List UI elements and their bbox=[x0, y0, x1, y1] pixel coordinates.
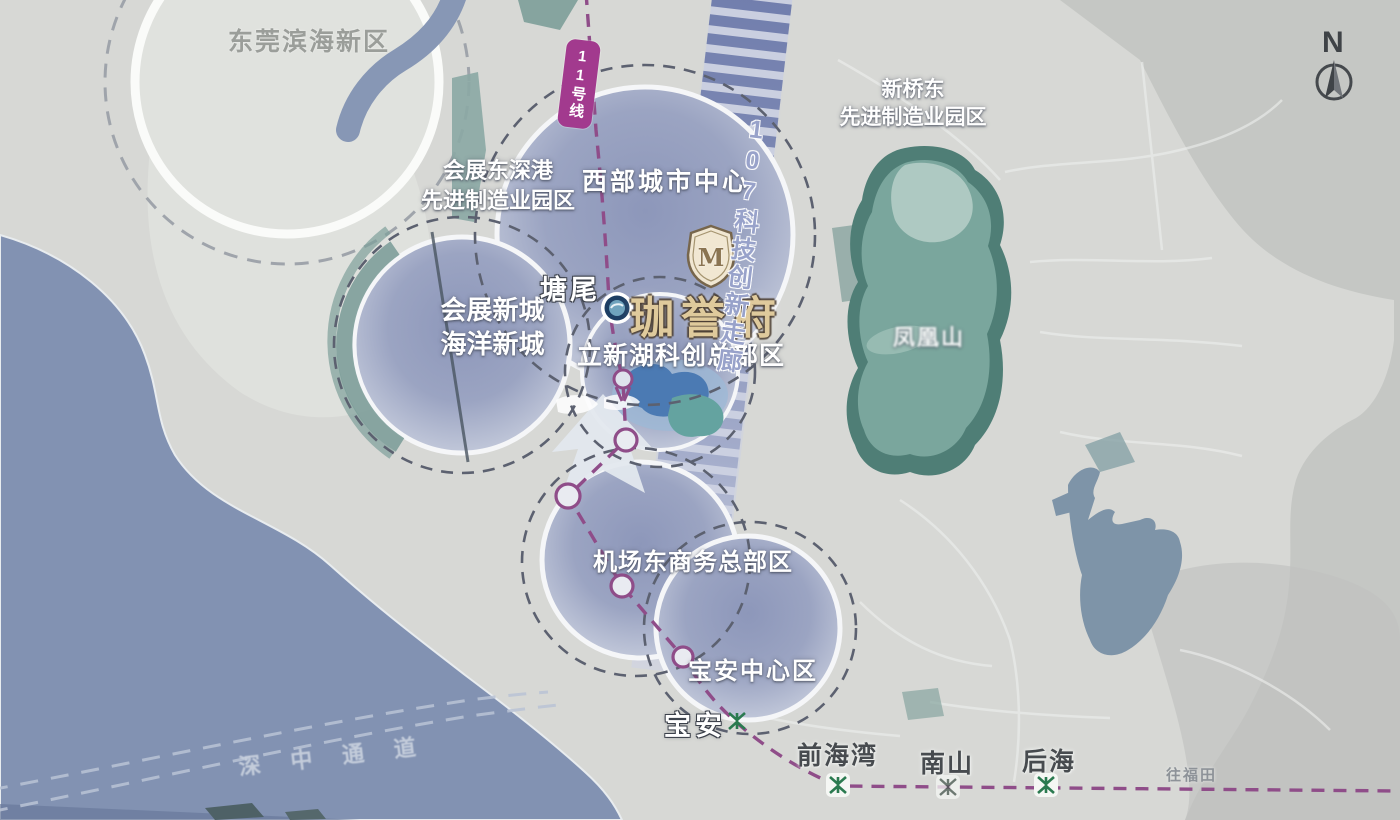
label-huizhandong-line2: 先进制造业园区 bbox=[403, 186, 593, 216]
label-station-tangwei: 塘尾 bbox=[540, 268, 600, 307]
label-xibu-center: 西部城市中心 bbox=[582, 162, 750, 198]
label-xinqiaodong: 新桥东 先进制造业园区 bbox=[822, 76, 1004, 133]
label-dongguan-binhai: 东莞滨海新区 bbox=[228, 22, 390, 58]
location-map: 东莞滨海新区 会展东深港 先进制造业园区 西部城市中心 新桥东 先进制造业园区 … bbox=[0, 0, 1400, 820]
label-jichangdong: 机场东商务总部区 bbox=[593, 542, 793, 577]
metro-icon bbox=[1034, 773, 1058, 797]
label-fenghuangshan: 凤凰山 bbox=[893, 320, 965, 352]
label-huizhandong-line1: 会展东深港 bbox=[403, 156, 593, 186]
teal-bit bbox=[902, 688, 944, 720]
compass-n-label: N bbox=[1322, 26, 1344, 60]
label-station-qianhaiwan: 前海湾 bbox=[797, 736, 878, 772]
label-xinqiaodong-line2: 先进制造业园区 bbox=[822, 104, 1004, 132]
tangwei-marker bbox=[601, 292, 633, 324]
label-xinqiaodong-line1: 新桥东 bbox=[822, 76, 1004, 104]
metro-icon bbox=[826, 773, 850, 797]
label-station-baoan: 宝安 bbox=[664, 704, 726, 743]
label-huizhandong: 会展东深港 先进制造业园区 bbox=[403, 156, 593, 215]
label-haiyang-xincheng: 海洋新城 bbox=[420, 328, 565, 362]
label-lixinhu: 立新湖科创总部区 bbox=[577, 336, 785, 372]
line11-badge-label: 11号线 bbox=[567, 47, 591, 120]
metro-icon bbox=[936, 775, 960, 799]
map-canvas bbox=[0, 0, 1400, 820]
metro-icon bbox=[725, 709, 749, 733]
label-baoan-center: 宝安中心区 bbox=[688, 651, 818, 686]
label-to-futian: 往福田 bbox=[1166, 764, 1217, 785]
